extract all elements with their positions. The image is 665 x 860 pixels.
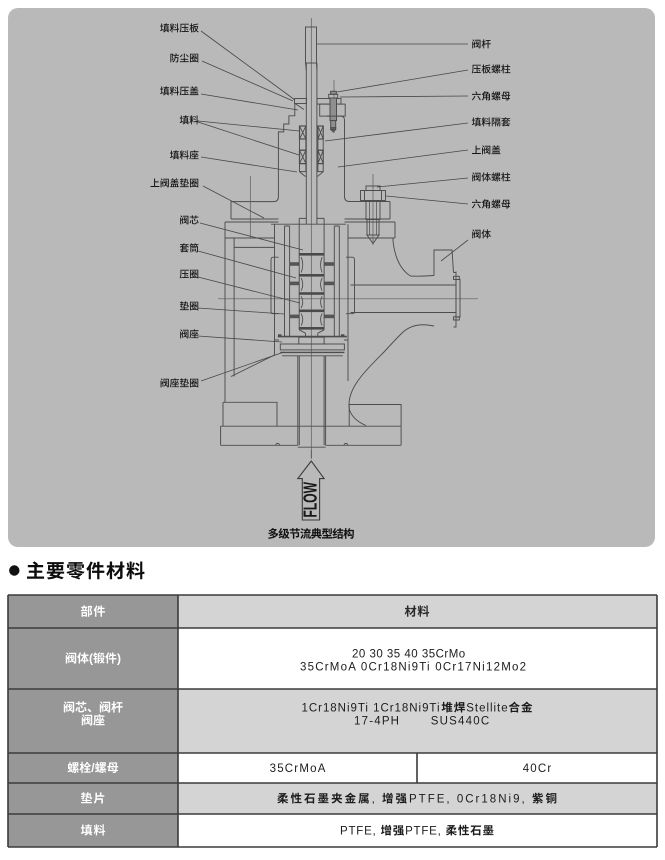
svg-text:17-4PH: 17-4PH [354,716,400,728]
svg-text:(: ( [89,652,93,666]
svg-text:40Cr: 40Cr [523,763,553,775]
svg-text:35CrMoA: 35CrMoA [270,763,327,775]
svg-text:PTFE,: PTFE, [340,826,377,838]
svg-text:Stellite: Stellite [466,703,508,715]
svg-text:PTFE,: PTFE, [405,826,442,838]
svg-text:): ) [117,652,121,666]
svg-text:1Cr18Ni9Ti 1Cr18Ni9Ti: 1Cr18Ni9Ti 1Cr18Ni9Ti [302,703,441,715]
svg-text:35CrMoA 0Cr18Ni9Ti 0Cr17Ni12: 35CrMoA 0Cr18Ni9Ti 0Cr17Ni12Mo2 [300,662,527,674]
svg-text:,: , [372,794,377,806]
svg-text:SUS440C: SUS440C [431,716,491,728]
svg-text:PTFE, 0Cr18Ni9,: PTFE, 0Cr18Ni9, [409,794,527,806]
svg-text:20 30 35 40 35CrMo: 20 30 35 40 35CrMo [352,649,466,661]
